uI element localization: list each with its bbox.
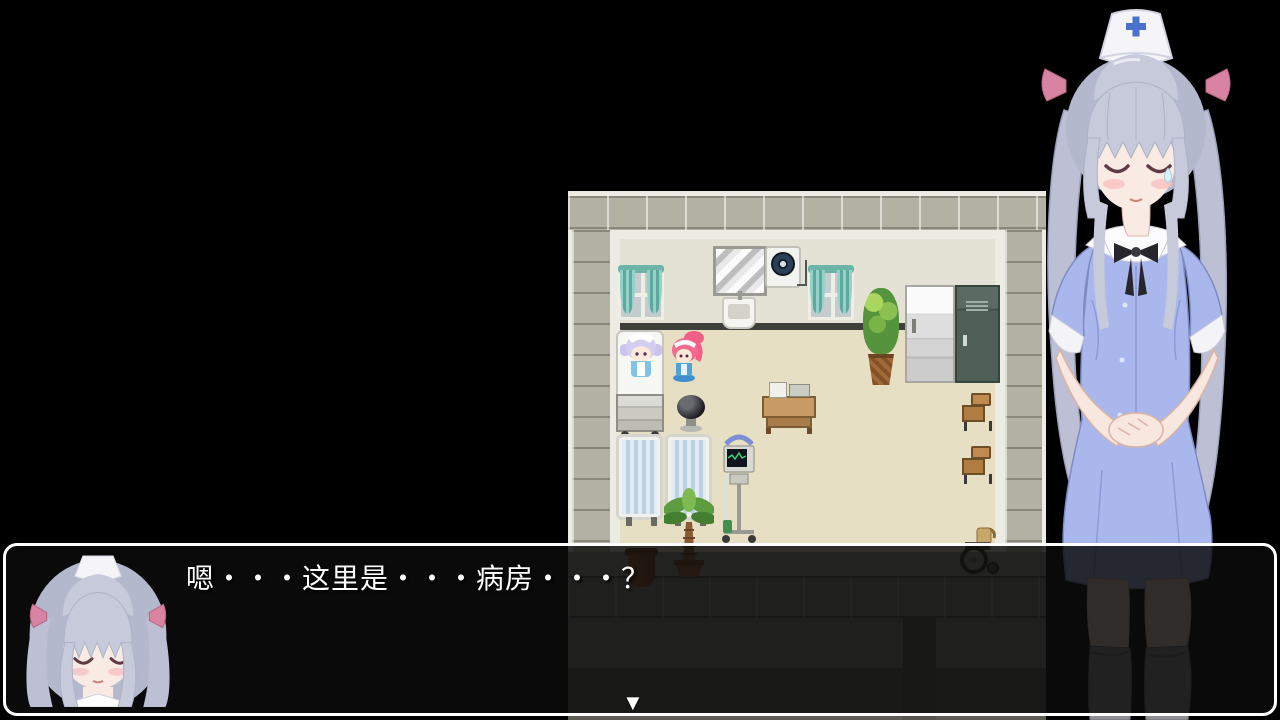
chair-seat xyxy=(962,458,985,475)
continue-arrow-icon[interactable]: ▼ xyxy=(622,692,644,714)
wash-sink xyxy=(722,297,756,329)
nurse-face-portrait xyxy=(22,554,174,707)
curtain-right xyxy=(837,270,852,314)
wall-tiles-top xyxy=(568,196,1046,230)
tall-potted-plant xyxy=(860,288,902,385)
stool-base xyxy=(680,425,702,432)
wall-mirror xyxy=(713,246,767,296)
chair-legs xyxy=(964,474,992,484)
game-screen[interactable]: 嗯・・・这里是・・・病房・・・？ ▼ xyxy=(0,0,1280,720)
table-top xyxy=(762,396,816,418)
medical-supply-table xyxy=(762,380,816,434)
black-stool xyxy=(676,395,706,432)
dialogue-text: 嗯・・・这里是・・・病房・・・？ xyxy=(186,560,1226,598)
curtain-left xyxy=(620,270,635,314)
table-tray-item xyxy=(789,384,810,397)
stool-top xyxy=(677,395,705,419)
window-left xyxy=(618,266,664,320)
plant-foliage xyxy=(863,288,899,354)
chair-legs xyxy=(964,421,992,431)
character-pink-maid xyxy=(668,330,706,382)
plant-pot xyxy=(868,354,894,385)
ventilation-fan-icon xyxy=(765,246,801,288)
storage-locker xyxy=(955,285,1000,383)
character-silver-maid xyxy=(620,328,662,382)
table-box-item xyxy=(769,382,787,398)
bed-base xyxy=(616,394,664,432)
school-chair-2 xyxy=(960,446,993,485)
refrigerator xyxy=(905,285,955,383)
privacy-screen-1 xyxy=(616,434,663,520)
curtain-left xyxy=(810,270,825,314)
chair-seat xyxy=(962,405,985,422)
school-chair-1 xyxy=(960,393,993,432)
window-right xyxy=(808,266,854,320)
curtain-right xyxy=(647,270,662,314)
